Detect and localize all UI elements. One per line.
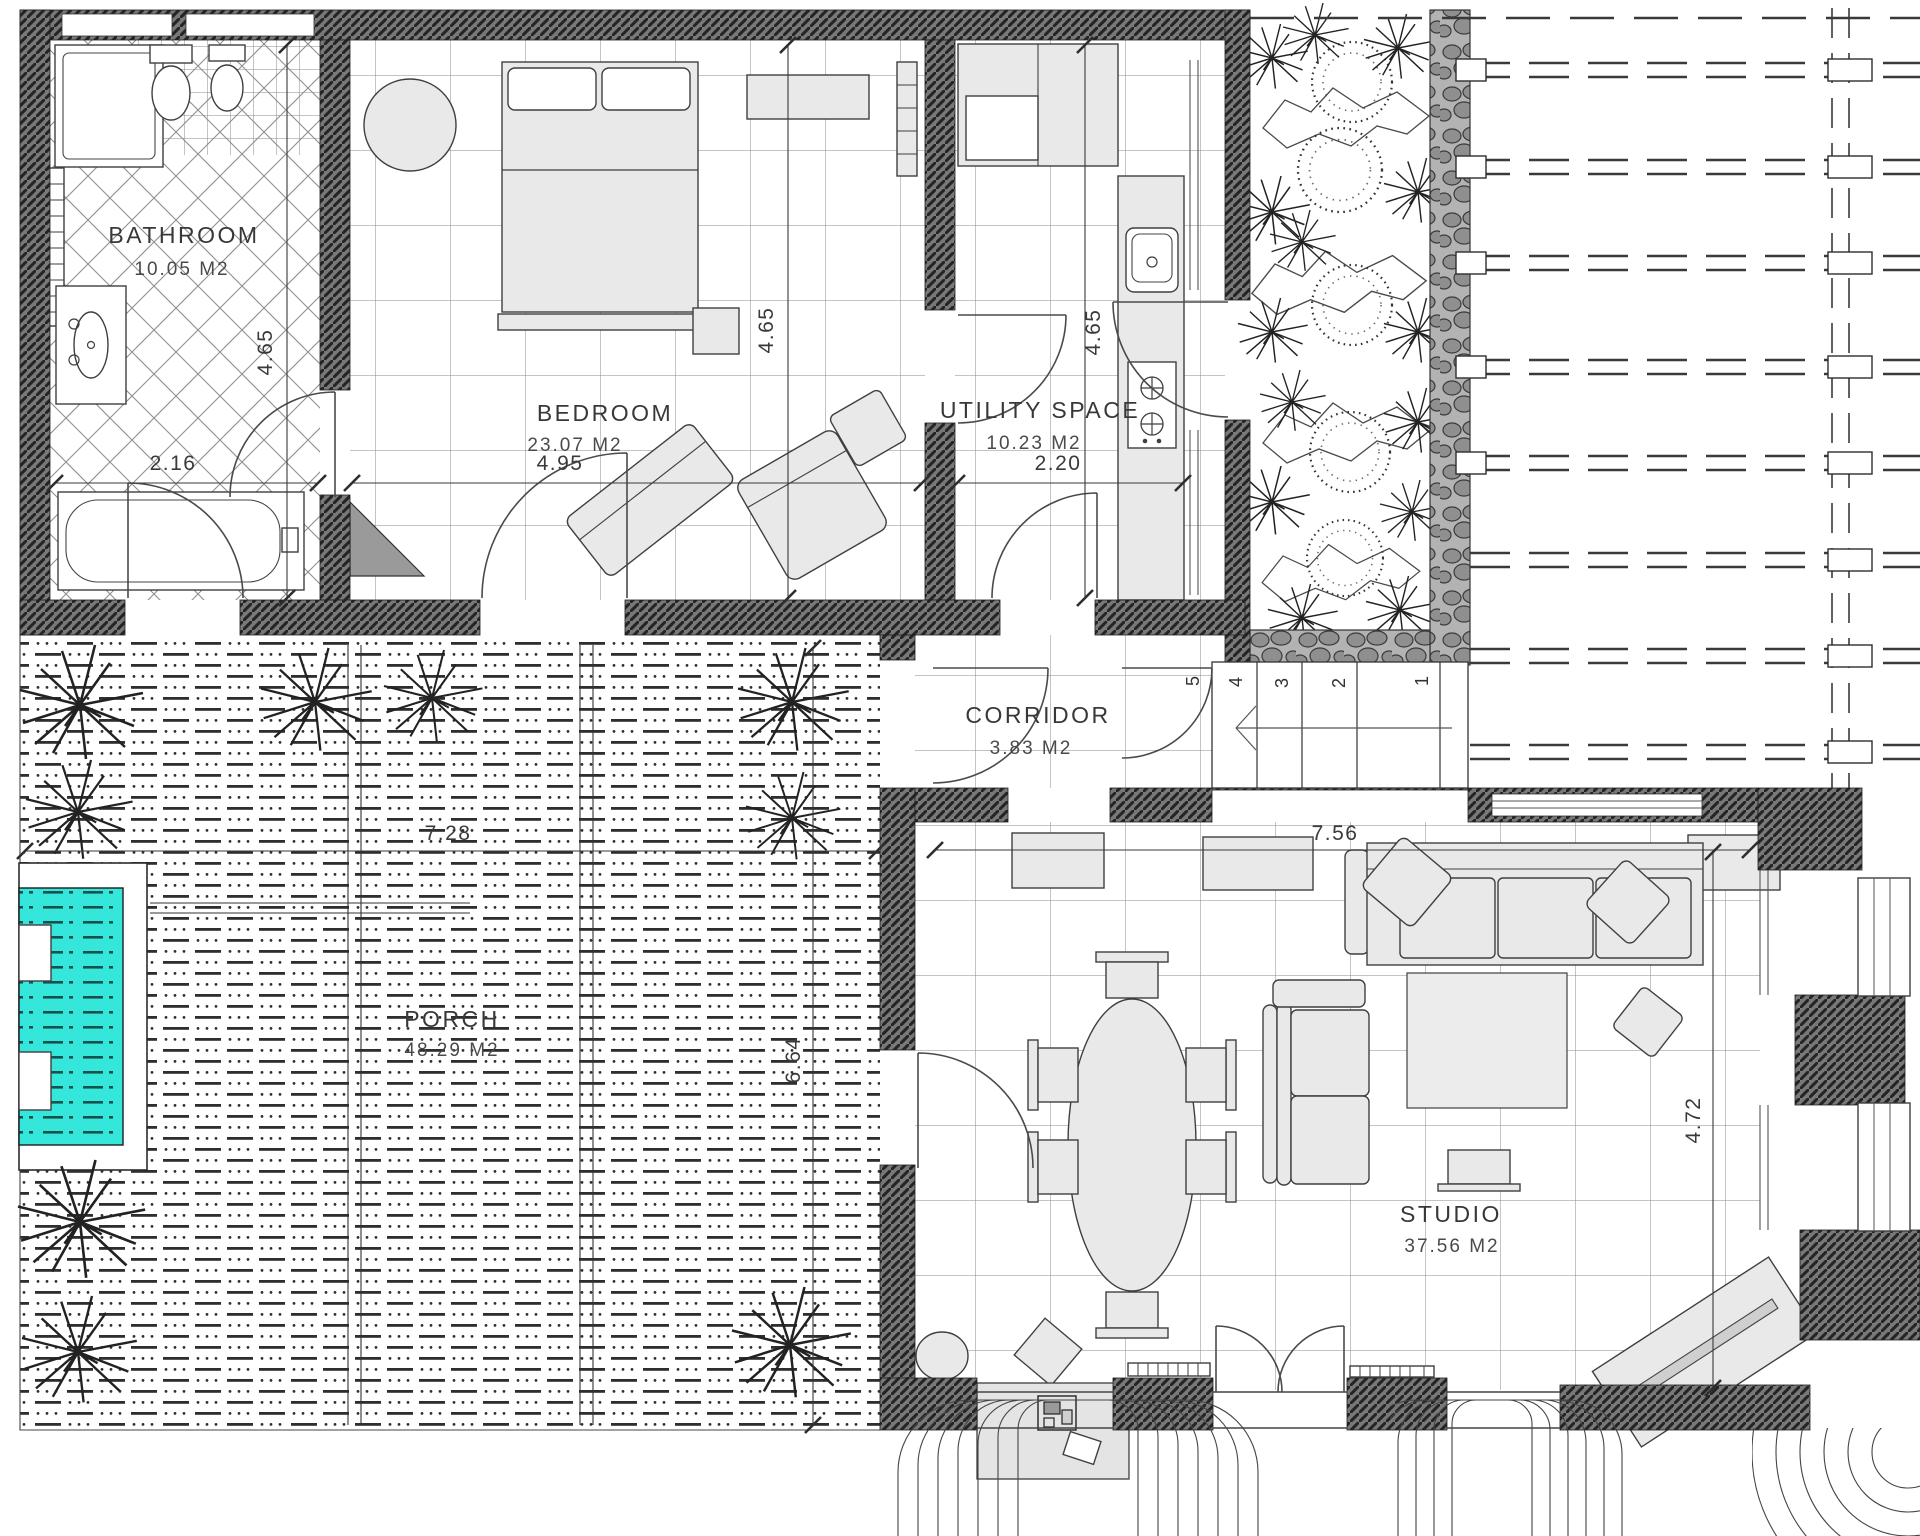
wardrobe-icon: [897, 62, 917, 176]
chair-icon: [1096, 952, 1168, 998]
bathtub-icon: [58, 492, 304, 590]
side-table-icon: [1012, 833, 1104, 888]
stair-step-label: 3: [1272, 678, 1292, 688]
chair-icon: [1186, 1132, 1236, 1202]
wall-bay-pier-mid: [1795, 995, 1905, 1105]
pool: [19, 863, 147, 1170]
round-table-icon: [364, 79, 456, 171]
room-area-corridor: 3.83 M2: [990, 738, 1073, 759]
chair-icon: [1028, 1040, 1078, 1110]
wall-bed-utility-2: [925, 423, 955, 600]
bidet-icon: [209, 45, 245, 111]
stair-step-label: 1: [1412, 676, 1432, 686]
chair-icon: [1028, 1132, 1078, 1202]
room-area-porch: 48.29 M2: [404, 1040, 499, 1061]
room-area-studio: 37.56 M2: [1404, 1236, 1499, 1257]
entry-platform: [977, 1383, 1129, 1479]
console-table-icon: [1203, 837, 1313, 890]
floor-plan-sheet: 5 4 3 2 1 4.65 4.65: [0, 0, 1920, 1536]
wall-bottom-4: [1095, 600, 1245, 635]
stool-icon: [916, 1332, 968, 1380]
svg-text:4.65: 4.65: [254, 329, 277, 376]
window-studio-top: [1492, 794, 1702, 816]
wall-pier-s2: [1347, 1378, 1447, 1430]
wall-corridor-bottom-2: [1110, 788, 1212, 822]
room-label-porch: PORCH: [404, 1006, 500, 1032]
svg-text:2.16: 2.16: [150, 452, 197, 475]
stair-step-label: 2: [1329, 678, 1349, 688]
pebble-wall: [1430, 10, 1470, 665]
pool-ladder-icon: [19, 1052, 51, 1110]
room-label-bedroom: BEDROOM: [537, 400, 673, 426]
room-label-studio: STUDIO: [1400, 1201, 1502, 1227]
pergola-beam-ends: [1456, 59, 1872, 763]
bed-icon: [498, 62, 702, 330]
wall-bottom-3: [625, 600, 1000, 635]
bay-window-2: [1858, 1103, 1910, 1231]
window-top-2: [186, 14, 314, 36]
svg-text:4.65: 4.65: [755, 307, 778, 354]
svg-text:7.28: 7.28: [425, 822, 472, 845]
chair-icon: [1096, 1292, 1168, 1338]
wall-bay-pier-bottom: [1800, 1230, 1920, 1340]
wall-bay-pier-top: [1758, 788, 1862, 870]
svg-text:2.20: 2.20: [1035, 452, 1082, 475]
wall-pier-s1: [1113, 1378, 1213, 1430]
loveseat-icon: [1263, 980, 1369, 1185]
floor-plan-drawing: 5 4 3 2 1 4.65 4.65: [0, 0, 1920, 1536]
room-label-corridor: CORRIDOR: [965, 702, 1110, 728]
wall-bath-bed-1: [320, 40, 350, 390]
laptop-table-icon: [1438, 1150, 1520, 1191]
wall-bath-bed-2: [320, 495, 350, 600]
pool-ladder-icon: [19, 925, 51, 981]
appliance-block-icon: [958, 44, 1118, 166]
wall-porch-studio-2: [880, 1165, 915, 1378]
svg-text:4.65: 4.65: [1082, 309, 1105, 356]
shower-icon: [55, 45, 163, 167]
nightstand-icon: [693, 308, 739, 354]
wall-garden-1: [1225, 10, 1250, 300]
chair-icon: [1186, 1040, 1236, 1110]
bay-window-1: [1858, 878, 1910, 996]
room-area-bedroom: 23.07 M2: [527, 435, 622, 456]
wall-bottom-1: [20, 600, 125, 635]
room-label-utility: UTILITY SPACE: [940, 397, 1140, 423]
toilet-icon: [150, 45, 192, 120]
pergola-posts-dashed: [1832, 8, 1849, 790]
kitchen-sink-icon: [1126, 228, 1178, 292]
stairs: 5 4 3 2 1: [1183, 662, 1468, 788]
bay-glazing: [1760, 870, 1768, 1230]
wall-bed-utility-1: [925, 40, 955, 310]
stair-step-label: 5: [1183, 676, 1203, 686]
dresser-icon: [747, 75, 869, 119]
wall-corridor-stub: [880, 635, 915, 660]
wall-porch-studio-1: [880, 788, 915, 1050]
room-label-bathroom: BATHROOM: [108, 222, 259, 248]
wall-corridor-bottom-1: [915, 788, 1008, 822]
room-area-bathroom: 10.05 M2: [134, 259, 229, 280]
pebble-strip: [1250, 630, 1430, 665]
window-top-1: [62, 14, 172, 36]
svg-text:6.64: 6.64: [782, 1037, 805, 1084]
dining-table-icon: [1068, 999, 1196, 1291]
rug: [1407, 973, 1567, 1108]
room-area-utility: 10.23 M2: [986, 433, 1081, 454]
garden-bed: [1250, 10, 1430, 630]
wall-bottom-2: [240, 600, 480, 635]
svg-text:7.56: 7.56: [1312, 822, 1359, 845]
stair-step-label: 4: [1226, 677, 1246, 687]
svg-text:4.72: 4.72: [1682, 1097, 1705, 1144]
wall-left: [20, 10, 50, 635]
garden: [1236, 3, 1470, 665]
wall-pier-sw: [880, 1378, 977, 1430]
porch-deck: [20, 635, 880, 1430]
washbasin-icon: [56, 286, 126, 404]
sofa-icon: [1345, 836, 1703, 965]
